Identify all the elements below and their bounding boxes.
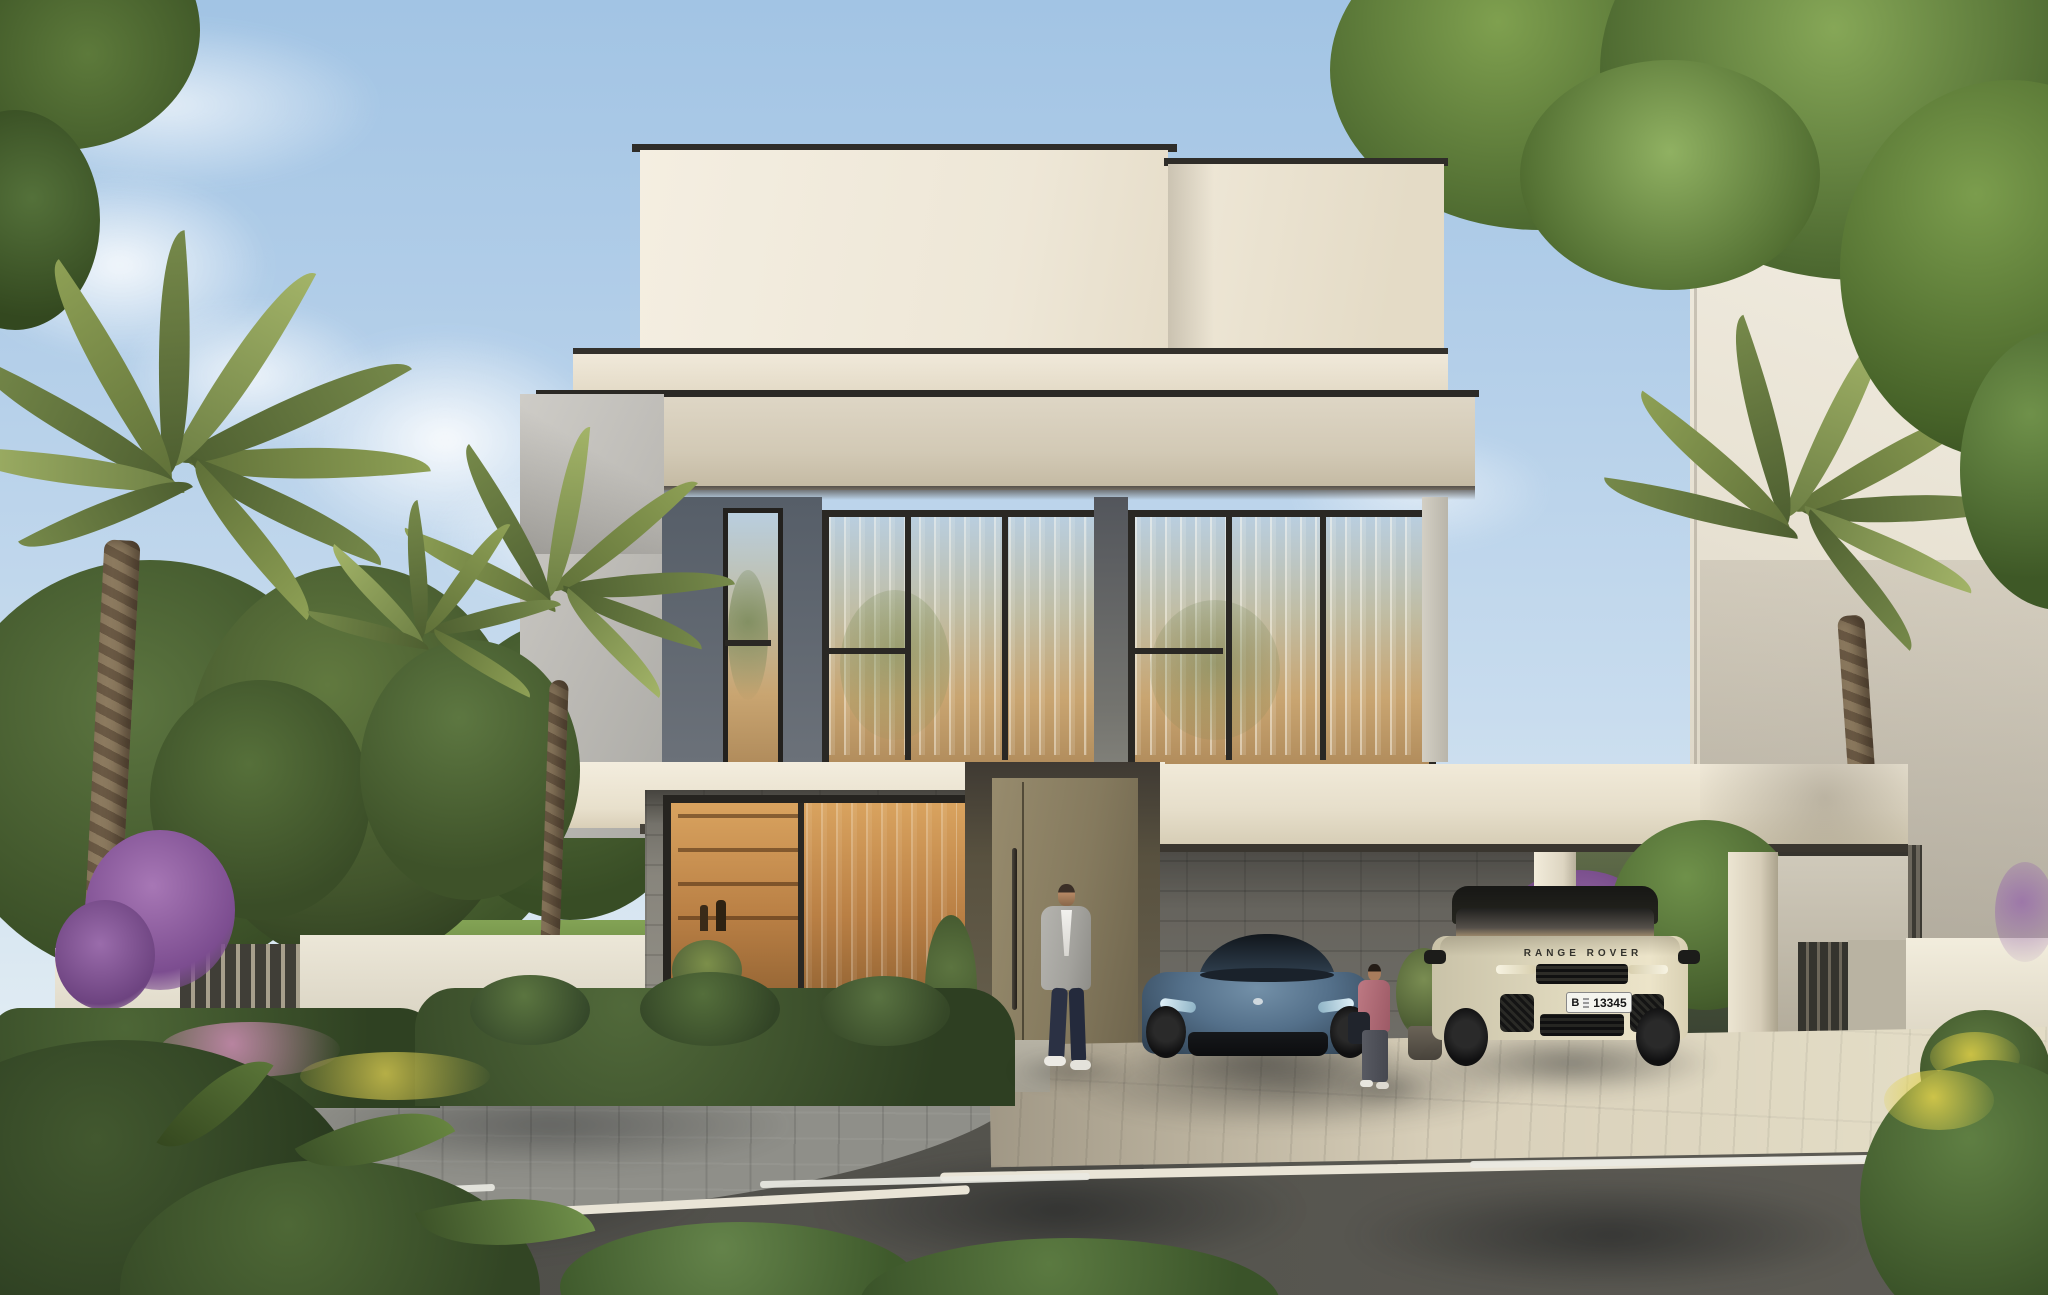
slot-window-transom xyxy=(725,640,771,646)
man-head xyxy=(1058,884,1075,906)
man-shoe xyxy=(1044,1056,1066,1066)
window-mullion xyxy=(1226,514,1232,760)
door-handle xyxy=(1012,848,1017,1010)
sportscar-wheel xyxy=(1146,1006,1186,1058)
door-seam xyxy=(1022,782,1024,1070)
woman-shoe xyxy=(1376,1082,1389,1089)
suv-license-plate: B 13345 xyxy=(1566,992,1632,1013)
woman-shoe xyxy=(1360,1080,1373,1087)
window-transom xyxy=(1135,648,1223,654)
fascia-band xyxy=(540,397,1475,490)
hedge-bump xyxy=(820,976,950,1046)
suv-grille xyxy=(1536,964,1628,984)
window-tree-reflection xyxy=(1150,600,1280,740)
hedge-bump xyxy=(640,972,780,1046)
suv-mirror xyxy=(1424,950,1446,964)
flowers-yellow xyxy=(1884,1070,1994,1130)
suv-hood-badge: RANGE ROVER xyxy=(1508,948,1658,959)
upper-corner-column xyxy=(1422,497,1448,762)
plate-divider xyxy=(1583,998,1589,1008)
interior-shelves xyxy=(678,810,798,920)
woman-head xyxy=(1368,964,1381,981)
plate-number: 13345 xyxy=(1593,996,1626,1010)
window-transom xyxy=(829,648,909,654)
bougainvillea-purple xyxy=(55,900,155,1010)
sportscar-splitter xyxy=(1188,1032,1328,1056)
scene-villa-render: RANGE ROVER B 13345 xyxy=(0,0,2048,1295)
sportscar-badge xyxy=(1253,998,1263,1005)
hedge-bump xyxy=(470,975,590,1045)
roof-box-left xyxy=(640,150,1168,354)
plate-prefix: B xyxy=(1571,997,1579,1009)
window-palm-reflection xyxy=(840,590,950,740)
suv-headlight xyxy=(1628,965,1668,974)
parapet-band xyxy=(573,354,1448,394)
suv-headlight xyxy=(1496,965,1536,974)
window-mullion xyxy=(1320,514,1326,760)
roof-box-shade xyxy=(1168,164,1214,354)
interior-bottle xyxy=(700,905,708,931)
window-mullion xyxy=(905,514,911,760)
flowers-yellow xyxy=(300,1052,490,1100)
tree-foliage xyxy=(1520,60,1820,290)
window-mullion xyxy=(1002,514,1008,760)
suv-mirror xyxy=(1678,950,1700,964)
interior-bottle xyxy=(716,900,726,931)
road-tree-shadow xyxy=(1350,1180,1870,1290)
flowers-purple xyxy=(1995,862,2048,962)
suv-wheel xyxy=(1444,1008,1488,1066)
carport-column-right xyxy=(1728,852,1778,1038)
fascia-coping xyxy=(536,390,1479,397)
man-shoe xyxy=(1070,1060,1091,1070)
suv-wheel xyxy=(1636,1008,1680,1066)
woman-trousers xyxy=(1362,1030,1388,1082)
man-trouser-leg xyxy=(1069,988,1087,1063)
suv-lower-intake xyxy=(1500,994,1534,1032)
slot-window-palm-reflection xyxy=(728,570,768,700)
suv-center-intake xyxy=(1540,1014,1624,1036)
sportscar-windshield-base xyxy=(1200,968,1334,982)
interior-window-mullion xyxy=(798,803,804,995)
